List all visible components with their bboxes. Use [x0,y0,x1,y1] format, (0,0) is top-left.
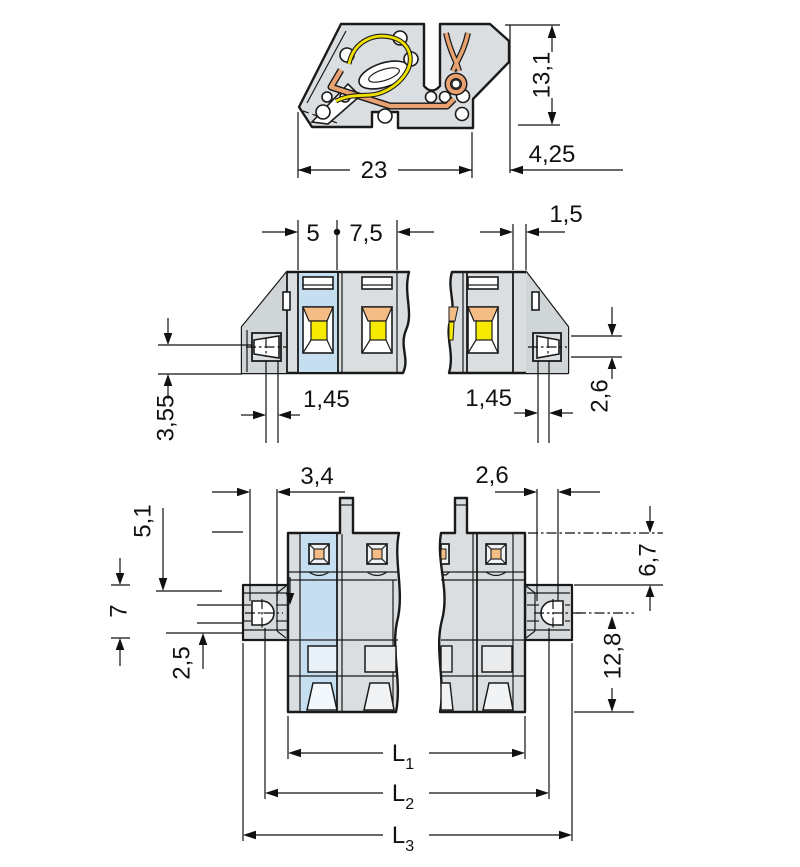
front-right-fragment [449,272,568,373]
dim-side-offset-label: 4,25 [529,141,576,168]
bottom-left-fragment [243,498,400,712]
dim-side-offset: 4,25 [510,25,623,174]
dim-flange-height-label: 7 [106,604,133,617]
dim-hole-height-label: 2,6 [587,379,614,412]
dim-l1: L1 [288,716,525,773]
contact-square [367,544,387,564]
latch-window [468,277,498,289]
dim-edge-to-flange-right-label: 6,7 [635,543,662,576]
funnel-bottom [364,683,394,710]
dim-pole-width: 5 7,5 [262,220,434,270]
dim-pole1-label: 5 [306,220,319,247]
dim-slot-right-label: 2,6 [475,462,508,489]
contact-square [309,544,329,564]
dim-edge-to-flange-left-label: 5,1 [130,504,157,537]
technical-drawing: 23 13,1 4,25 [0,0,800,867]
dim-side-height-label: 13,1 [529,52,556,99]
dim-pitch-label: 7,5 [349,220,382,247]
dim-wall-label: 1,5 [549,201,582,228]
dim-slot-left-label: 3,4 [300,463,333,490]
dim-hole-width-left-label: 1,45 [303,386,350,413]
dim-l1-sub: 1 [405,756,414,773]
dim-flange-to-end-label: 12,8 [600,633,627,680]
cavity-rect [308,646,337,672]
dim-side-width-label: 23 [361,157,388,184]
dim-wall: 1,5 [480,201,583,270]
dim-l2-base: L [392,780,405,807]
dim-flange-height: 7 [106,558,133,666]
flange-hole-right [528,333,567,361]
drawing-page: 23 13,1 4,25 [0,0,800,867]
cavity-rect-cut [441,646,452,672]
dim-flange-drop-label: 3,55 [153,395,180,442]
dim-l1-base: L [392,740,405,767]
dim-side-height: 13,1 [505,25,560,125]
wire-entry-funnel [362,307,392,353]
cavity-rect [365,646,396,672]
contact-square [486,544,506,564]
cavity-rect [482,646,512,672]
latch-slot [532,292,539,310]
front-view: 5 7,5 1,5 3,55 1,45 [153,201,623,443]
dim-l2-sub: 2 [405,796,414,813]
dim-l3-sub: 3 [405,838,414,855]
wire-entry-funnel [468,307,498,353]
dim-flange-drop: 3,55 [153,318,253,441]
dim-l1-label: L1 [392,740,414,773]
front-left-fragment [242,272,409,373]
dim-edge-to-flange-left: 5,1 [130,504,244,591]
contact-square-cut [441,544,449,564]
bottom-right-outline [439,498,525,712]
dim-hole-height: 2,6 [571,307,622,413]
bottom-view: 3,4 2,6 5,1 7 [106,462,664,855]
dim-flange-to-end: 12,8 [574,613,634,712]
bottom-right-fragment [439,498,581,712]
dim-hole-offset-label: 2,5 [169,646,196,679]
wire-entry-funnel [303,307,333,353]
dim-l3-label: L3 [392,822,414,855]
dim-l3-base: L [392,822,405,849]
flange-hole-left [246,333,287,361]
funnel-bottom [307,683,337,710]
side-section-view: 23 13,1 4,25 [298,24,623,184]
dim-hole-width-right-label: 1,45 [465,385,512,412]
funnel-bottom [483,683,513,710]
latch-slot [283,292,290,310]
dim-l2-label: L2 [392,780,414,813]
